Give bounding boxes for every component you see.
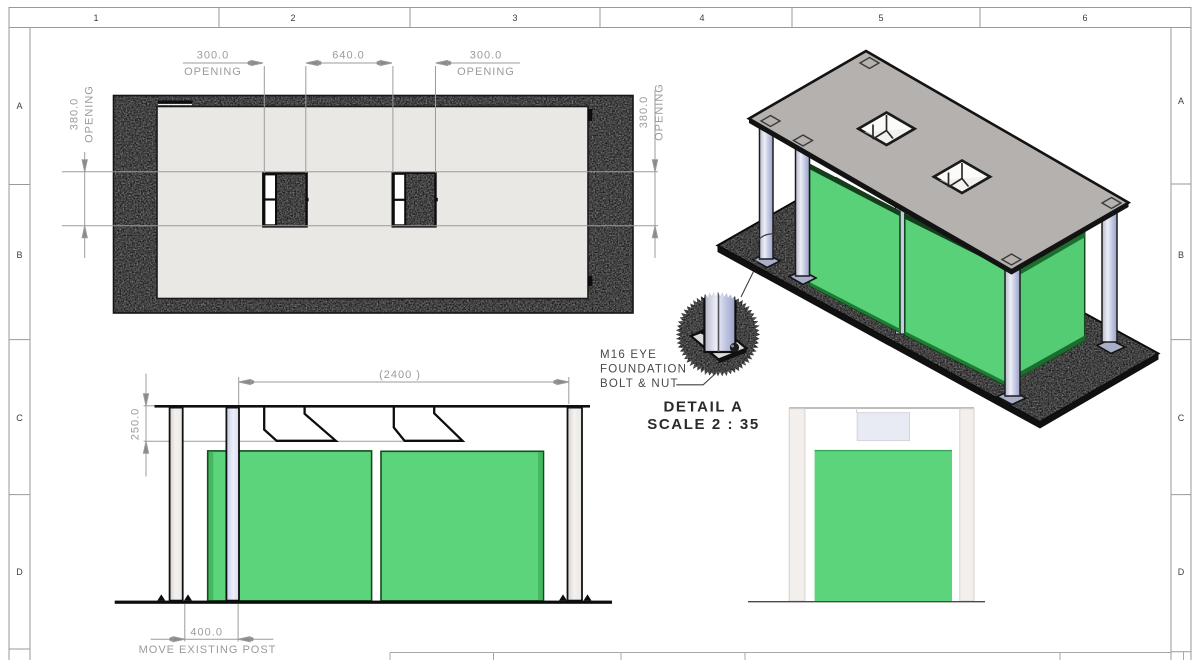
svg-text:640.0: 640.0 bbox=[332, 50, 365, 62]
svg-text:380.0: 380.0 bbox=[69, 98, 81, 131]
svg-text:300.0: 300.0 bbox=[197, 50, 230, 62]
svg-text:BOLT & NUT: BOLT & NUT bbox=[600, 378, 679, 390]
svg-text:OPENING: OPENING bbox=[84, 85, 96, 143]
svg-text:D: D bbox=[16, 567, 23, 577]
svg-text:OPENING: OPENING bbox=[184, 66, 242, 78]
svg-text:6: 6 bbox=[1082, 13, 1087, 23]
svg-text:DETAIL A: DETAIL A bbox=[663, 399, 743, 416]
svg-text:A: A bbox=[1178, 96, 1184, 106]
svg-text:SCALE 2 : 35: SCALE 2 : 35 bbox=[647, 416, 760, 433]
svg-text:380.0: 380.0 bbox=[638, 96, 650, 129]
svg-text:2: 2 bbox=[290, 13, 295, 23]
svg-text:400.0: 400.0 bbox=[190, 626, 223, 638]
svg-text:MOVE EXISTING POST: MOVE EXISTING POST bbox=[139, 644, 277, 656]
svg-text:250.0: 250.0 bbox=[130, 408, 142, 441]
svg-text:C: C bbox=[16, 413, 23, 423]
svg-text:5: 5 bbox=[878, 13, 883, 23]
svg-text:OPENING: OPENING bbox=[654, 83, 666, 141]
svg-text:C: C bbox=[1178, 413, 1185, 423]
svg-text:A: A bbox=[16, 101, 22, 111]
svg-text:OPENING: OPENING bbox=[457, 66, 515, 78]
svg-text:FOUNDATION: FOUNDATION bbox=[600, 364, 687, 376]
svg-text:D: D bbox=[1178, 567, 1185, 577]
svg-text:M16 EYE: M16 EYE bbox=[600, 349, 657, 361]
svg-text:B: B bbox=[1178, 250, 1184, 260]
svg-text:300.0: 300.0 bbox=[470, 50, 503, 62]
svg-text:3: 3 bbox=[512, 13, 517, 23]
svg-text:4: 4 bbox=[699, 13, 704, 23]
svg-text:(2400 ): (2400 ) bbox=[379, 369, 421, 381]
svg-text:B: B bbox=[16, 250, 22, 260]
svg-text:1: 1 bbox=[93, 13, 98, 23]
